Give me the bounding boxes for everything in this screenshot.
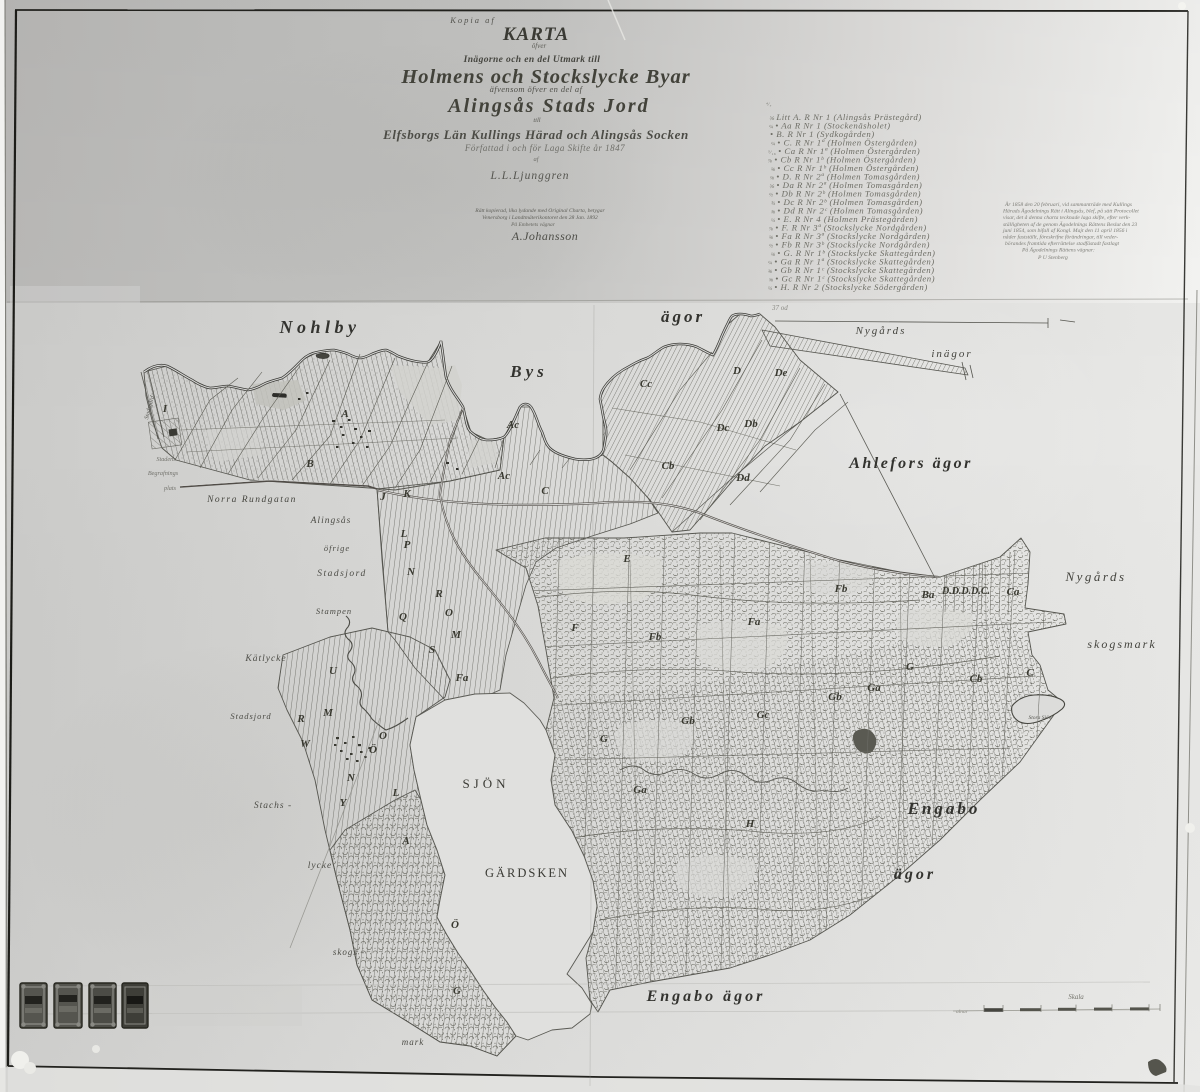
svg-text:K: K <box>402 488 411 500</box>
svg-text:R: R <box>296 713 304 725</box>
svg-text:öfver: öfver <box>532 42 547 50</box>
svg-text:Fa: Fa <box>747 616 761 628</box>
svg-text:Ga: Ga <box>633 784 647 796</box>
svg-text:Alingsås Stads Jord: Alingsås Stads Jord <box>446 95 649 117</box>
svg-text:Ba: Ba <box>921 589 935 601</box>
svg-text:G: G <box>906 661 914 673</box>
svg-text:skogs -: skogs - <box>333 947 365 957</box>
svg-text:Stadens: Stadens <box>156 456 176 463</box>
svg-text:De: De <box>774 367 788 379</box>
svg-text:Begrafnings: Begrafnings <box>148 470 179 477</box>
svg-text:L.L.Ljunggren: L.L.Ljunggren <box>489 170 569 182</box>
svg-text:Bys: Bys <box>509 362 548 381</box>
svg-text:Ca: Ca <box>1007 586 1020 598</box>
svg-text:ställigheten af de genom Ägode: ställigheten af de genom Ägodelnings Rät… <box>1003 221 1137 228</box>
svg-text:G: G <box>600 733 608 745</box>
svg-text:Stadsjord: Stadsjord <box>230 711 271 721</box>
svg-text:Nohlby: Nohlby <box>279 317 361 337</box>
svg-text:C: C <box>541 485 549 497</box>
svg-text:Fb: Fb <box>648 631 662 643</box>
svg-text:⁴⁄₇: ⁴⁄₇ <box>766 102 772 108</box>
svg-text:Cb: Cb <box>970 673 983 685</box>
svg-text:Engabo ägor: Engabo ägor <box>646 988 766 1005</box>
svg-text:ägor: ägor <box>894 866 936 883</box>
svg-text:F: F <box>570 622 579 634</box>
svg-text:Gc: Gc <box>757 709 770 721</box>
svg-text:Stadsjord: Stadsjord <box>317 569 367 579</box>
svg-text:börandes framtida efterrättels: börandes framtida efterrättelse stadfäst… <box>1005 240 1119 247</box>
svg-text:inägor: inägor <box>931 348 972 360</box>
svg-text:alnar: alnar <box>956 1009 969 1015</box>
svg-text:Ahlefors ägor: Ahlefors ägor <box>848 455 973 472</box>
svg-text:ägor: ägor <box>661 307 705 326</box>
svg-text:¼ • H. R Nr 2 (Stockslycke: ¼ • H. R Nr 2 (Stockslycke Södergården) <box>768 282 928 292</box>
svg-text:Stachs -: Stachs - <box>254 801 292 811</box>
svg-text:Alingsås: Alingsås <box>310 515 352 526</box>
svg-text:G: G <box>453 985 461 997</box>
svg-text:Nygårds: Nygårds <box>855 325 907 337</box>
svg-text:J: J <box>379 491 386 503</box>
svg-text:O: O <box>445 607 453 619</box>
svg-text:Fb: Fb <box>834 583 848 595</box>
svg-text:Kopia af: Kopia af <box>449 15 496 25</box>
svg-text:skogsmark: skogsmark <box>1087 637 1156 651</box>
svg-text:Cc: Cc <box>640 378 652 390</box>
svg-text:Gb: Gb <box>681 715 695 727</box>
svg-text:äfvensom öfver en del af: äfvensom öfver en del af <box>490 84 584 94</box>
svg-text:Härads Ägodelnings Rätt i Alin: Härads Ägodelnings Rätt i Alingsås, blef… <box>1002 208 1139 215</box>
svg-text:A.Johansson: A.Johansson <box>511 229 579 243</box>
svg-text:H: H <box>745 818 755 830</box>
svg-text:plats: plats <box>163 485 177 492</box>
svg-text:Ac: Ac <box>497 470 510 482</box>
svg-text:Q: Q <box>399 611 407 623</box>
svg-text:Fa: Fa <box>455 672 469 684</box>
svg-text:juni 1854, som bifall af Kongl: juni 1854, som bifall af Kongl. Majt den… <box>1002 227 1128 234</box>
svg-text:Stampen: Stampen <box>316 606 352 616</box>
svg-text:till: till <box>533 117 540 124</box>
svg-text:SJÖN: SJÖN <box>462 776 509 791</box>
svg-text:Rätt kopierad, lika lydande me: Rätt kopierad, lika lydande med Original… <box>474 208 605 214</box>
svg-text:Dc: Dc <box>716 422 730 434</box>
svg-text:L: L <box>392 787 400 799</box>
svg-text:Stora Sjön: Stora Sjön <box>1028 715 1051 721</box>
svg-text:År 1858 den 20 februari, vid s: År 1858 den 20 februari, vid sammanträde… <box>1004 200 1132 208</box>
svg-text:På Ägodelnings Rättens vägnar:: På Ägodelnings Rättens vägnar: <box>1021 247 1095 254</box>
svg-text:Författad i och för Laga Skift: Författad i och för Laga Skifte år 1847 <box>464 143 625 153</box>
svg-text:Ac: Ac <box>506 419 519 431</box>
svg-text:B: B <box>305 458 313 470</box>
svg-text:Db: Db <box>743 418 758 430</box>
svg-text:visar, det å denna charta teck: visar, det å denna charta tecknade laga … <box>1003 214 1130 221</box>
svg-text:E: E <box>622 553 630 565</box>
svg-text:D.D.D.D.C.: D.D.D.D.C. <box>941 586 990 597</box>
svg-text:P U Stenberg: P U Stenberg <box>1037 255 1068 261</box>
svg-text:Gb: Gb <box>828 691 842 703</box>
svg-text:R: R <box>434 588 442 600</box>
svg-text:S: S <box>429 644 435 656</box>
svg-text:37 od: 37 od <box>771 304 788 312</box>
svg-text:Ga: Ga <box>867 682 881 694</box>
svg-text:Engabo: Engabo <box>907 799 981 818</box>
svg-text:På Embetets vägnar: På Embetets vägnar <box>510 221 556 228</box>
svg-text:M: M <box>322 707 334 719</box>
svg-text:D: D <box>732 365 741 377</box>
svg-text:nåder fastställt, föreskrifne: nåder fastställt, föreskrifne förändring… <box>1003 234 1118 241</box>
svg-text:C: C <box>1026 667 1034 679</box>
svg-text:Dd: Dd <box>735 472 750 484</box>
svg-text:Cb: Cb <box>662 460 675 472</box>
svg-text:Venersborg i Landtmäterikontor: Venersborg i Landtmäterikontoret den 28 … <box>482 215 598 221</box>
svg-text:Norra Rundgatan: Norra Rundgatan <box>206 495 297 505</box>
svg-text:GÄRDSKEN: GÄRDSKEN <box>485 866 569 880</box>
svg-text:N: N <box>406 566 416 578</box>
svg-text:Inägorne och en del Utmark til: Inägorne och en del Utmark till <box>463 55 601 65</box>
svg-text:Ö: Ö <box>451 918 459 931</box>
svg-text:A: A <box>401 835 409 847</box>
svg-text:W: W <box>300 738 311 750</box>
svg-text:O: O <box>379 730 387 742</box>
svg-text:Elfsborgs Län Kullings Härad o: Elfsborgs Län Kullings Härad och Alingså… <box>382 127 689 142</box>
svg-text:I: I <box>162 403 168 415</box>
svg-text:Kätlycke: Kätlycke <box>244 654 286 664</box>
svg-text:A: A <box>340 408 348 420</box>
svg-text:U: U <box>329 665 338 677</box>
svg-text:lycke: lycke <box>308 861 333 871</box>
svg-text:mark: mark <box>402 1037 425 1047</box>
svg-text:M: M <box>450 629 462 641</box>
svg-text:Ö: Ö <box>369 743 377 756</box>
svg-text:Nygårds: Nygårds <box>1064 569 1126 584</box>
svg-text:öfrige: öfrige <box>324 543 350 553</box>
svg-text:Skala: Skala <box>1068 993 1084 1001</box>
svg-text:P: P <box>404 539 411 551</box>
